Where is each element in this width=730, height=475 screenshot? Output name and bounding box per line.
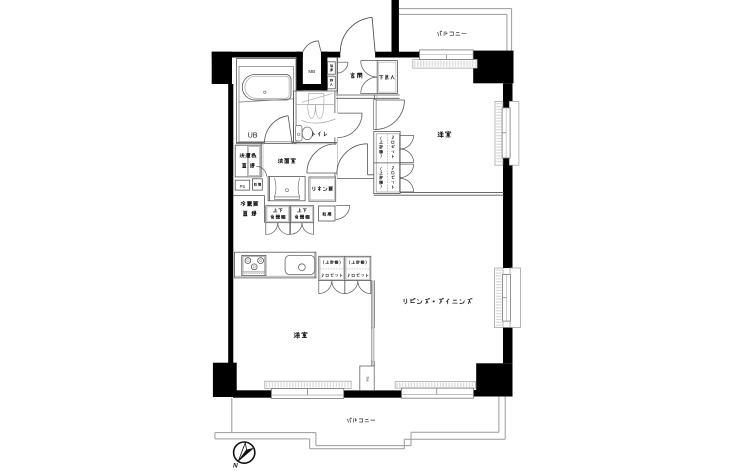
svg-text:UB: UB (248, 131, 258, 140)
svg-text:MB: MB (308, 69, 315, 74)
svg-text:N: N (233, 462, 238, 469)
svg-text:PG: PG (366, 376, 370, 381)
svg-text:PS: PS (240, 184, 246, 189)
